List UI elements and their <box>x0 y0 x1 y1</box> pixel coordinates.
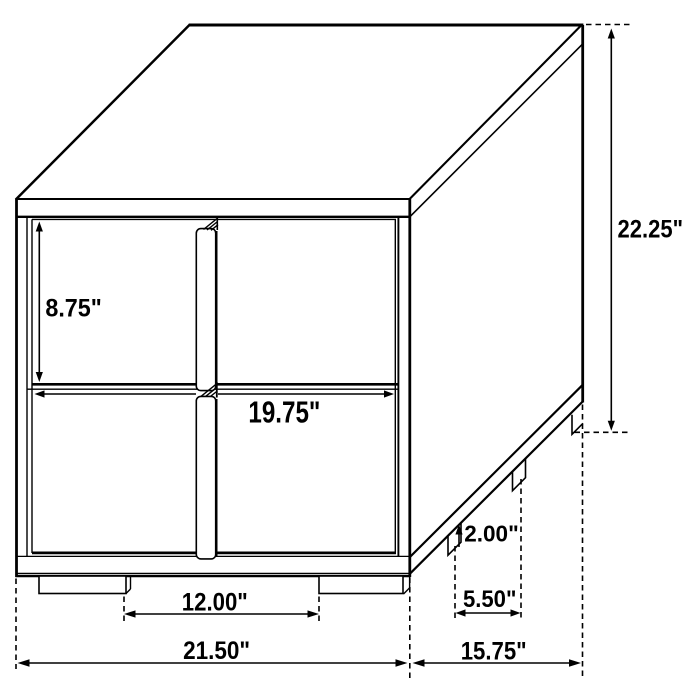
svg-text:8.75": 8.75" <box>45 294 102 322</box>
svg-text:15.75": 15.75" <box>461 638 527 666</box>
svg-text:12.00": 12.00" <box>182 588 248 616</box>
svg-text:21.50": 21.50" <box>183 637 250 665</box>
svg-text:5.50": 5.50" <box>463 586 517 613</box>
svg-text:19.75": 19.75" <box>248 395 320 429</box>
svg-text:22.25": 22.25" <box>618 216 684 244</box>
svg-text:2.00": 2.00" <box>464 520 519 546</box>
